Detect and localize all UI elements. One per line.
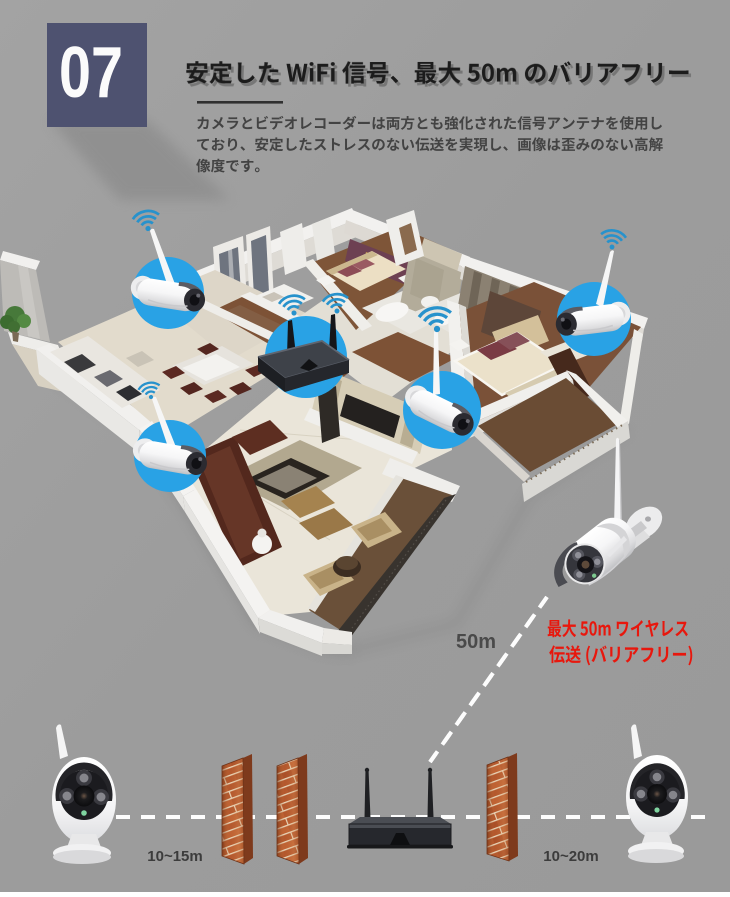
svg-text:07: 07 bbox=[59, 33, 123, 113]
svg-text:50m: 50m bbox=[456, 631, 496, 653]
svg-text:10~15m: 10~15m bbox=[147, 848, 202, 865]
svg-text:10~20m: 10~20m bbox=[543, 848, 598, 865]
